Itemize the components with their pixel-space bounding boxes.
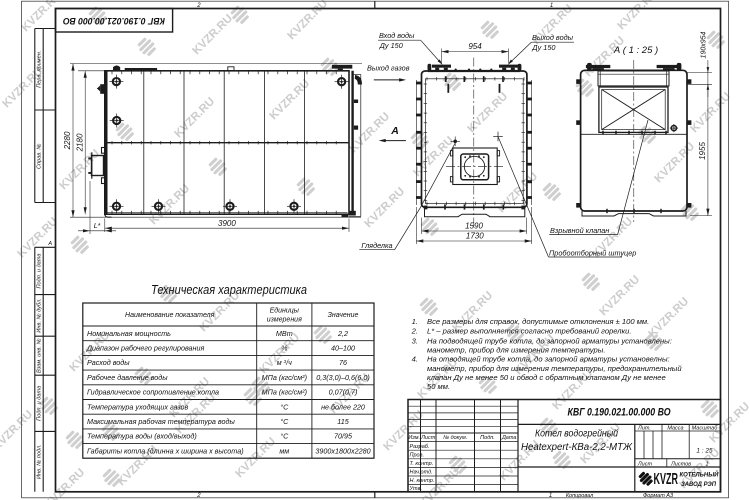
svg-text:МПа (кгс/см²): МПа (кгс/см²) — [262, 373, 307, 382]
svg-text:Выход газов: Выход газов — [367, 63, 410, 72]
svg-text:Температура уходящих газов: Температура уходящих газов — [87, 402, 189, 411]
svg-text:°С: °С — [280, 432, 289, 441]
svg-text:Пробоотборный штуцер: Пробоотборный штуцер — [549, 248, 636, 257]
svg-text:1.: 1. — [412, 317, 418, 326]
svg-text:Перв. примен.: Перв. примен. — [37, 51, 43, 88]
svg-text:МПа (кгс/см²): МПа (кгс/см²) — [262, 388, 307, 397]
svg-text:№ докум.: № докум. — [443, 435, 467, 441]
svg-text:Ду 150: Ду 150 — [379, 41, 403, 50]
svg-text:40–100: 40–100 — [331, 343, 355, 352]
svg-text:50 мм.: 50 мм. — [427, 382, 450, 391]
svg-text:1730: 1730 — [466, 232, 484, 241]
svg-text:Лист: Лист — [420, 435, 436, 441]
svg-text:2,2: 2,2 — [337, 329, 348, 338]
svg-text:Диапазон рабочего регулировани: Диапазон рабочего регулирования — [86, 343, 205, 352]
svg-text:2: 2 — [196, 493, 201, 499]
svg-text:Гидравлическое сопротивление к: Гидравлическое сопротивление котла — [87, 388, 219, 397]
svg-text:Т. контр.: Т. контр. — [410, 461, 434, 467]
svg-text:Н. контр.: Н. контр. — [410, 478, 435, 484]
svg-text:Подп.: Подп. — [480, 435, 495, 441]
svg-text:954: 954 — [468, 42, 482, 51]
svg-text:Техническая характеристика: Техническая характеристика — [151, 283, 307, 297]
svg-text:Подп. и дата: Подп. и дата — [37, 253, 43, 288]
svg-text:1: 1 — [549, 493, 552, 499]
svg-text:Выход воды: Выход воды — [532, 33, 574, 42]
svg-text:°С: °С — [280, 417, 289, 426]
svg-text:3900х1800х2280: 3900х1800х2280 — [315, 446, 370, 455]
svg-text:Лит.: Лит. — [637, 425, 651, 431]
svg-text:2.: 2. — [411, 327, 418, 336]
svg-text:115: 115 — [337, 417, 349, 426]
svg-text:ЗАВОД РЭП: ЗАВОД РЭП — [681, 481, 716, 488]
svg-text:Дата: Дата — [501, 435, 517, 441]
svg-text:1955: 1955 — [698, 142, 707, 160]
svg-text:Подп. и дата: Подп. и дата — [37, 386, 43, 421]
svg-text:Расход воды: Расход воды — [87, 358, 130, 367]
svg-text:Формат А3: Формат А3 — [643, 493, 674, 499]
svg-text:0,3(3,0)–0,6(6,0): 0,3(3,0)–0,6(6,0) — [316, 373, 370, 382]
svg-text:Габариты котла (длинна х ширин: Габариты котла (длинна х ширина х высота… — [87, 446, 244, 455]
svg-text:1: 1 — [550, 3, 553, 9]
svg-text:Инв. № подл.: Инв. № подл. — [37, 444, 43, 479]
svg-text:Взрывной клапан: Взрывной клапан — [550, 226, 609, 235]
svg-text:Наименование показателя: Наименование показателя — [125, 312, 215, 319]
svg-text:Справ. №: Справ. № — [37, 144, 43, 169]
svg-text:Разраб.: Разраб. — [410, 444, 430, 450]
svg-text:не более 220: не более 220 — [321, 402, 365, 411]
svg-text:Лист: Лист — [637, 461, 653, 467]
svg-text:измерения: измерения — [267, 317, 302, 324]
svg-text:Изм.: Изм. — [408, 435, 420, 441]
svg-text:1590: 1590 — [465, 222, 483, 231]
svg-text:3900: 3900 — [218, 219, 236, 228]
svg-text:Масса: Масса — [667, 425, 683, 431]
svg-text:76: 76 — [339, 358, 347, 367]
svg-text:МВт: МВт — [276, 329, 293, 338]
svg-text:Значение: Значение — [328, 312, 359, 319]
svg-text:Гляделка: Гляделка — [361, 241, 392, 250]
svg-text:Единицы: Единицы — [270, 307, 300, 315]
svg-text:2: 2 — [196, 3, 201, 9]
svg-text:Копировал: Копировал — [566, 493, 593, 499]
svg-text:L*: L* — [94, 223, 101, 230]
svg-text:4.: 4. — [412, 355, 418, 364]
svg-text:%: % — [281, 343, 288, 352]
svg-text:3.: 3. — [412, 336, 418, 345]
svg-text:Все размеры для справок, допус: Все размеры для справок, допустимые откл… — [427, 317, 649, 326]
svg-text:L* – размер выполняется соглас: L* – размер выполняется согласно требова… — [427, 327, 631, 336]
svg-text:Инв. № дубл.: Инв. № дубл. — [37, 298, 43, 332]
svg-text:мм: мм — [279, 446, 289, 455]
svg-text:А: А — [390, 125, 399, 137]
svg-text:1: 1 — [705, 461, 708, 467]
svg-text:КОТЕЛЬНЫЙ: КОТЕЛЬНЫЙ — [680, 470, 719, 479]
svg-text:Котел водогрейный: Котел водогрейный — [535, 429, 619, 440]
svg-text:манометр, прибор для измерения: манометр, прибор для измерения температу… — [427, 346, 605, 355]
svg-text:Максимальная рабочая температу: Максимальная рабочая температура воды — [87, 417, 235, 426]
svg-text:Взам. инв. №: Взам. инв. № — [37, 338, 43, 373]
svg-text:Ду 150: Ду 150 — [531, 43, 555, 52]
svg-text:Листов: Листов — [670, 461, 691, 467]
svg-text:190х954: 190х954 — [701, 31, 708, 58]
svg-text:клапан Ду не менее 50 и обвод: клапан Ду не менее 50 и обвод с обратным… — [427, 373, 666, 382]
svg-text:70/95: 70/95 — [334, 432, 353, 441]
svg-text:Утв.: Утв. — [409, 486, 423, 492]
svg-text:Heatexpert-КВа-2,2-МТЖ: Heatexpert-КВа-2,2-МТЖ — [521, 442, 633, 453]
svg-text:Нач.отд.: Нач.отд. — [410, 470, 433, 476]
svg-text:Рабочее давление воды: Рабочее давление воды — [87, 373, 168, 382]
svg-text:Температура воды (вход/выход): Температура воды (вход/выход) — [87, 432, 197, 441]
svg-text:KVZR: KVZR — [654, 471, 679, 488]
svg-text:КВГ 0.190.021.00.000 ВО: КВГ 0.190.021.00.000 ВО — [63, 16, 165, 26]
svg-text:Номинальная мощность: Номинальная мощность — [87, 329, 171, 338]
svg-text:Пров.: Пров. — [410, 452, 425, 458]
svg-text:Масштаб: Масштаб — [692, 425, 719, 431]
svg-text:Вход воды: Вход воды — [379, 31, 415, 40]
svg-text:На подводящей трубе котла, до: На подводящей трубе котла, до запорной а… — [427, 336, 672, 345]
svg-text:манометр, прибор для измерения: манометр, прибор для измерения температу… — [427, 364, 682, 373]
svg-text:1 : 25: 1 : 25 — [696, 448, 713, 455]
svg-text:°С: °С — [280, 402, 289, 411]
svg-text:А ( 1 : 25 ): А ( 1 : 25 ) — [613, 45, 658, 56]
svg-text:На отводящей трубе котла, до з: На отводящей трубе котла, до запорной ар… — [427, 355, 670, 364]
svg-text:2180: 2180 — [75, 133, 84, 152]
svg-text:КВГ 0.190.021.00.000 ВО: КВГ 0.190.021.00.000 ВО — [568, 406, 671, 418]
svg-text:0,07(0,7): 0,07(0,7) — [329, 388, 358, 397]
svg-text:2280: 2280 — [63, 131, 72, 150]
svg-text:А: А — [47, 241, 52, 247]
